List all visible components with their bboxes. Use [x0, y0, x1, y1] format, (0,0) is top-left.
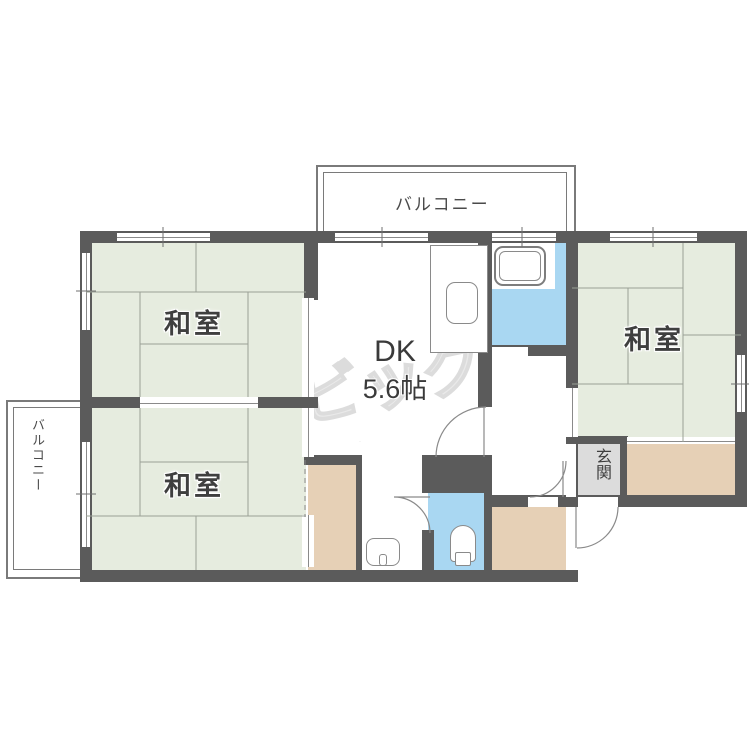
- entrance-door-arc: [576, 507, 618, 548]
- wall-toilet-left: [422, 530, 434, 570]
- bathtub-icon: [494, 246, 546, 286]
- corridor-doorway: [528, 497, 558, 507]
- window-washitsu-e: [610, 233, 697, 241]
- kitchen-sink-icon: [446, 282, 478, 324]
- washer-drain: [379, 554, 387, 566]
- toilet-door-arc: [394, 497, 430, 533]
- balcony-door-dk: [335, 233, 428, 241]
- window-washitsu-nw: [117, 233, 210, 241]
- dk-corridor-door-arc: [436, 407, 486, 457]
- closet-e-sliding-door: [627, 437, 735, 444]
- bathtub-inner-line: [499, 251, 541, 281]
- washitsu-sw-label: 和室: [164, 464, 224, 503]
- wall-bottom-left: [80, 570, 578, 582]
- balcony-left-label: バルコニー: [28, 418, 47, 568]
- wall-dk-stub: [304, 243, 318, 300]
- balcony-left-inner-line: [13, 407, 81, 570]
- dk-name-label: DK: [340, 335, 450, 369]
- balcony-door-washitsu-sw: [82, 442, 90, 547]
- window-right: [737, 355, 745, 412]
- fusuma-between-washitsu: [140, 397, 258, 408]
- closet-center: [486, 500, 566, 570]
- genkan-label: 玄関: [589, 448, 613, 496]
- toilet-base: [455, 552, 471, 566]
- closet-e: [625, 441, 737, 497]
- window-left-upper: [82, 253, 90, 330]
- wall-genkan-top: [566, 436, 628, 444]
- genkan-corridor-door-arc: [530, 461, 566, 497]
- wall-toilet-right: [484, 493, 492, 570]
- entrance-doorway: [578, 497, 618, 507]
- sliding-door-washitsu-sw-lower: [302, 515, 314, 567]
- sliding-door-washitsu-e: [566, 388, 578, 437]
- wall-block-center: [422, 455, 492, 493]
- dk-size-label: 5.6帖: [340, 367, 450, 406]
- closet-sw: [308, 463, 360, 570]
- floor-plan: バルコニー バルコニー ビッグ: [0, 0, 750, 750]
- wall-genkan-closet-divider: [620, 436, 627, 500]
- window-bathroom: [492, 233, 556, 241]
- sliding-door-washitsu-sw-dk: [302, 408, 314, 457]
- balcony-top-label: バルコニー: [395, 190, 490, 215]
- bathroom-doorway: [492, 347, 528, 356]
- wall-closet-sw-right: [356, 455, 362, 570]
- washitsu-nw-label: 和室: [164, 302, 224, 341]
- washitsu-e-label: 和室: [624, 318, 684, 357]
- sliding-door-washitsu-nw-dk: [302, 298, 314, 397]
- genkan-corridor-opening: [566, 444, 576, 497]
